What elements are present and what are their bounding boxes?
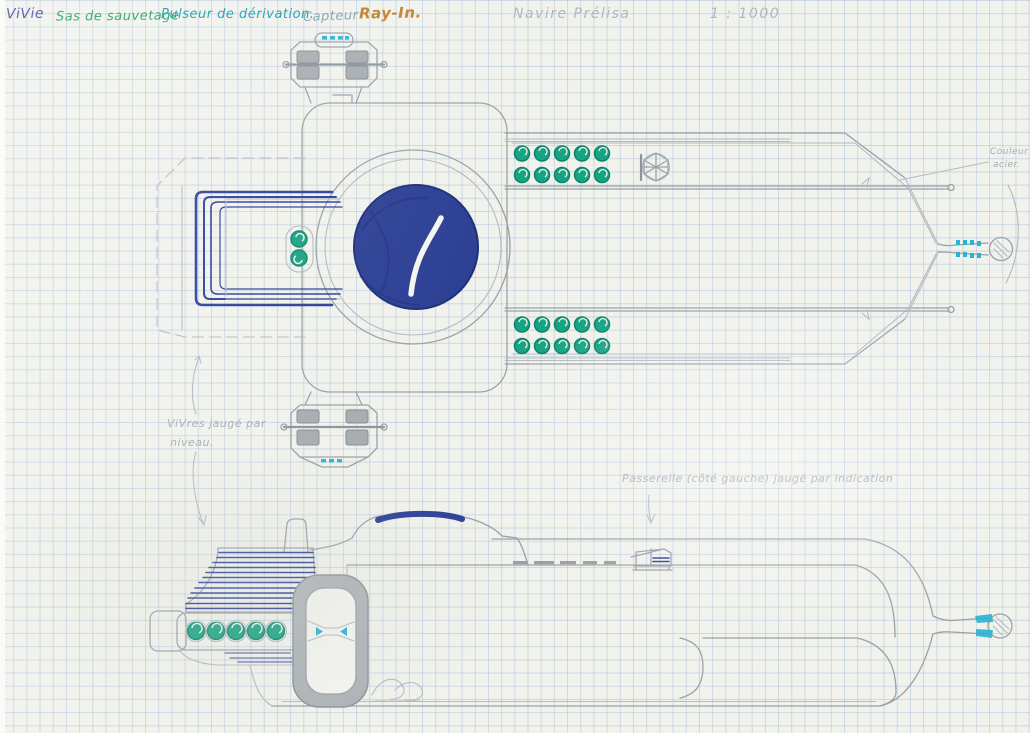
dome-blue-arc bbox=[378, 514, 462, 520]
tail-cyan-marks bbox=[975, 614, 993, 638]
thruster-pod-top bbox=[283, 33, 387, 103]
ship-blueprint-drawing bbox=[0, 0, 1030, 733]
graph-paper-sheet: ViVie Sas de sauvetage Pulseur de dériva… bbox=[0, 0, 1030, 733]
legend-sensor: Capteur bbox=[303, 8, 359, 25]
steel-note-leaders bbox=[900, 162, 1018, 283]
nose-probe bbox=[150, 611, 186, 651]
command-dome-top bbox=[316, 150, 510, 344]
bow-side bbox=[150, 548, 317, 706]
top-view bbox=[157, 33, 1018, 525]
keel-detail bbox=[372, 679, 423, 701]
side-portholes bbox=[186, 621, 287, 642]
pod-cap bbox=[315, 33, 353, 47]
hull-top-side bbox=[310, 514, 865, 704]
bow-bracket-1 bbox=[196, 192, 332, 305]
lower-portholes bbox=[515, 317, 610, 354]
legend-drift-thruster: Pulseur de dérivation. bbox=[161, 7, 314, 22]
upper-boom bbox=[505, 133, 954, 244]
upper-portholes bbox=[515, 146, 610, 183]
legend-ship-name: ViVie bbox=[6, 6, 44, 23]
annotation-steel-line1: Couleur bbox=[990, 147, 1028, 158]
bridge-house bbox=[631, 549, 672, 570]
bow-top bbox=[157, 158, 342, 337]
pod-neck-b bbox=[305, 392, 362, 405]
annotation-steel-line2: acier. bbox=[993, 160, 1020, 171]
drawing-scale: 1 : 1000 bbox=[710, 6, 780, 22]
pod-neck bbox=[305, 87, 362, 103]
blue-dome bbox=[354, 185, 478, 309]
annotation-bridge: Passerelle (côté gauche) jaugé par indic… bbox=[622, 472, 893, 485]
ring-inner bbox=[306, 588, 356, 694]
annotation-supplies-line2: niveau. bbox=[170, 436, 214, 449]
bow-bracket-4 bbox=[220, 207, 342, 289]
bridge-arrow bbox=[647, 495, 655, 523]
fin bbox=[284, 519, 308, 552]
chin-hatching bbox=[225, 653, 292, 662]
bow-outline bbox=[157, 158, 305, 337]
thruster-pod-bottom bbox=[281, 392, 387, 467]
bridge-window bbox=[653, 558, 669, 562]
mid-hull-cap bbox=[680, 638, 703, 698]
hull-stern-side bbox=[272, 539, 1012, 706]
side-view bbox=[150, 495, 1012, 707]
legend-ray-in: Ray-In. bbox=[359, 3, 422, 22]
escape-ring-side bbox=[293, 575, 368, 707]
drawing-title: Navire Prélisa bbox=[513, 6, 631, 22]
ball-hatch bbox=[994, 241, 1009, 258]
annotation-supplies-line1: ViVres jaugé par bbox=[167, 417, 266, 430]
spoked-wheel bbox=[641, 153, 670, 181]
lower-boom bbox=[505, 253, 954, 364]
tail-sensor-top bbox=[938, 238, 1013, 261]
